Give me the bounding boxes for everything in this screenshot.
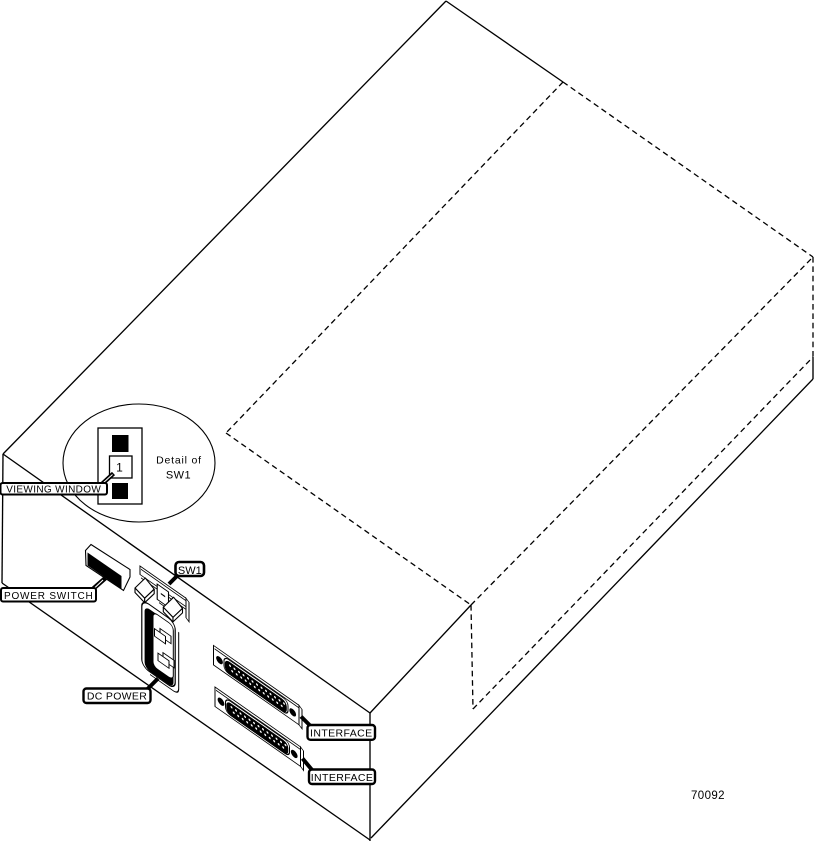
svg-text:POWER SWITCH: POWER SWITCH xyxy=(4,591,94,602)
svg-text:70092: 70092 xyxy=(691,790,725,802)
svg-text:VIEWING WINDOW: VIEWING WINDOW xyxy=(6,485,101,496)
svg-text:SW1: SW1 xyxy=(166,470,191,482)
svg-text:INTERFACE: INTERFACE xyxy=(311,772,374,784)
svg-text:1: 1 xyxy=(116,461,123,475)
svg-text:DC POWER: DC POWER xyxy=(87,691,147,703)
svg-text:Detail of: Detail of xyxy=(156,455,202,467)
svg-text:INTERFACE: INTERFACE xyxy=(310,727,373,739)
svg-text:SW1: SW1 xyxy=(178,565,202,577)
